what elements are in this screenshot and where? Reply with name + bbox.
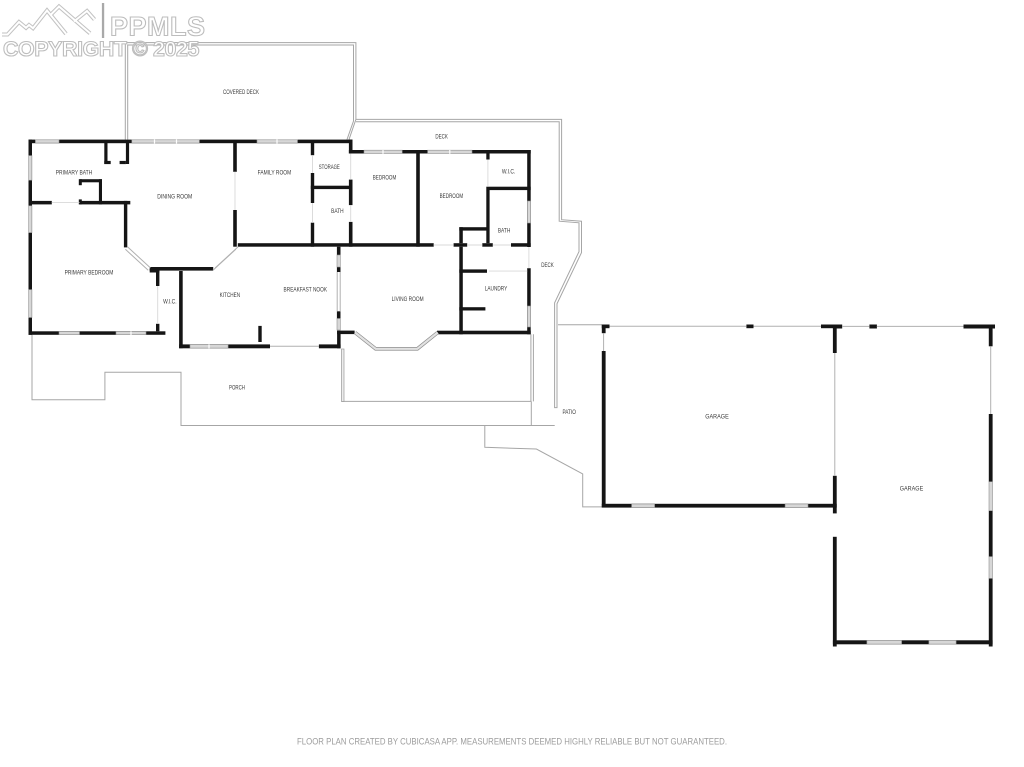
svg-text:PATIO: PATIO <box>562 409 576 416</box>
svg-text:LIVING ROOM: LIVING ROOM <box>392 296 424 303</box>
svg-text:BATH: BATH <box>331 208 344 215</box>
svg-text:KITCHEN: KITCHEN <box>220 292 241 299</box>
svg-text:COPYRIGHT © 2025: COPYRIGHT © 2025 <box>3 37 200 61</box>
svg-text:PRIMARY BATH: PRIMARY BATH <box>56 170 93 177</box>
svg-text:DINING ROOM: DINING ROOM <box>157 193 192 200</box>
svg-text:W.I.C.: W.I.C. <box>502 169 516 176</box>
svg-text:PRIMARY BEDROOM: PRIMARY BEDROOM <box>65 269 114 276</box>
svg-text:BREAKFAST NOOK: BREAKFAST NOOK <box>284 287 328 294</box>
svg-text:BEDROOM: BEDROOM <box>373 175 397 182</box>
svg-text:PORCH: PORCH <box>229 385 245 392</box>
svg-text:FLOOR PLAN CREATED BY CUBICASA: FLOOR PLAN CREATED BY CUBICASA APP. MEAS… <box>297 737 727 747</box>
svg-text:BEDROOM: BEDROOM <box>440 193 464 200</box>
svg-text:GARAGE: GARAGE <box>900 485 924 492</box>
svg-text:STORAGE: STORAGE <box>319 164 340 171</box>
svg-text:BATH: BATH <box>498 227 511 234</box>
svg-text:GARAGE: GARAGE <box>705 413 729 420</box>
svg-text:DECK: DECK <box>541 262 554 269</box>
svg-text:COVERED DECK: COVERED DECK <box>223 89 259 96</box>
svg-text:FAMILY ROOM: FAMILY ROOM <box>258 170 292 177</box>
svg-text:DECK: DECK <box>435 134 448 141</box>
svg-text:W.I.C.: W.I.C. <box>163 299 177 306</box>
svg-text:LAUNDRY: LAUNDRY <box>485 285 508 292</box>
